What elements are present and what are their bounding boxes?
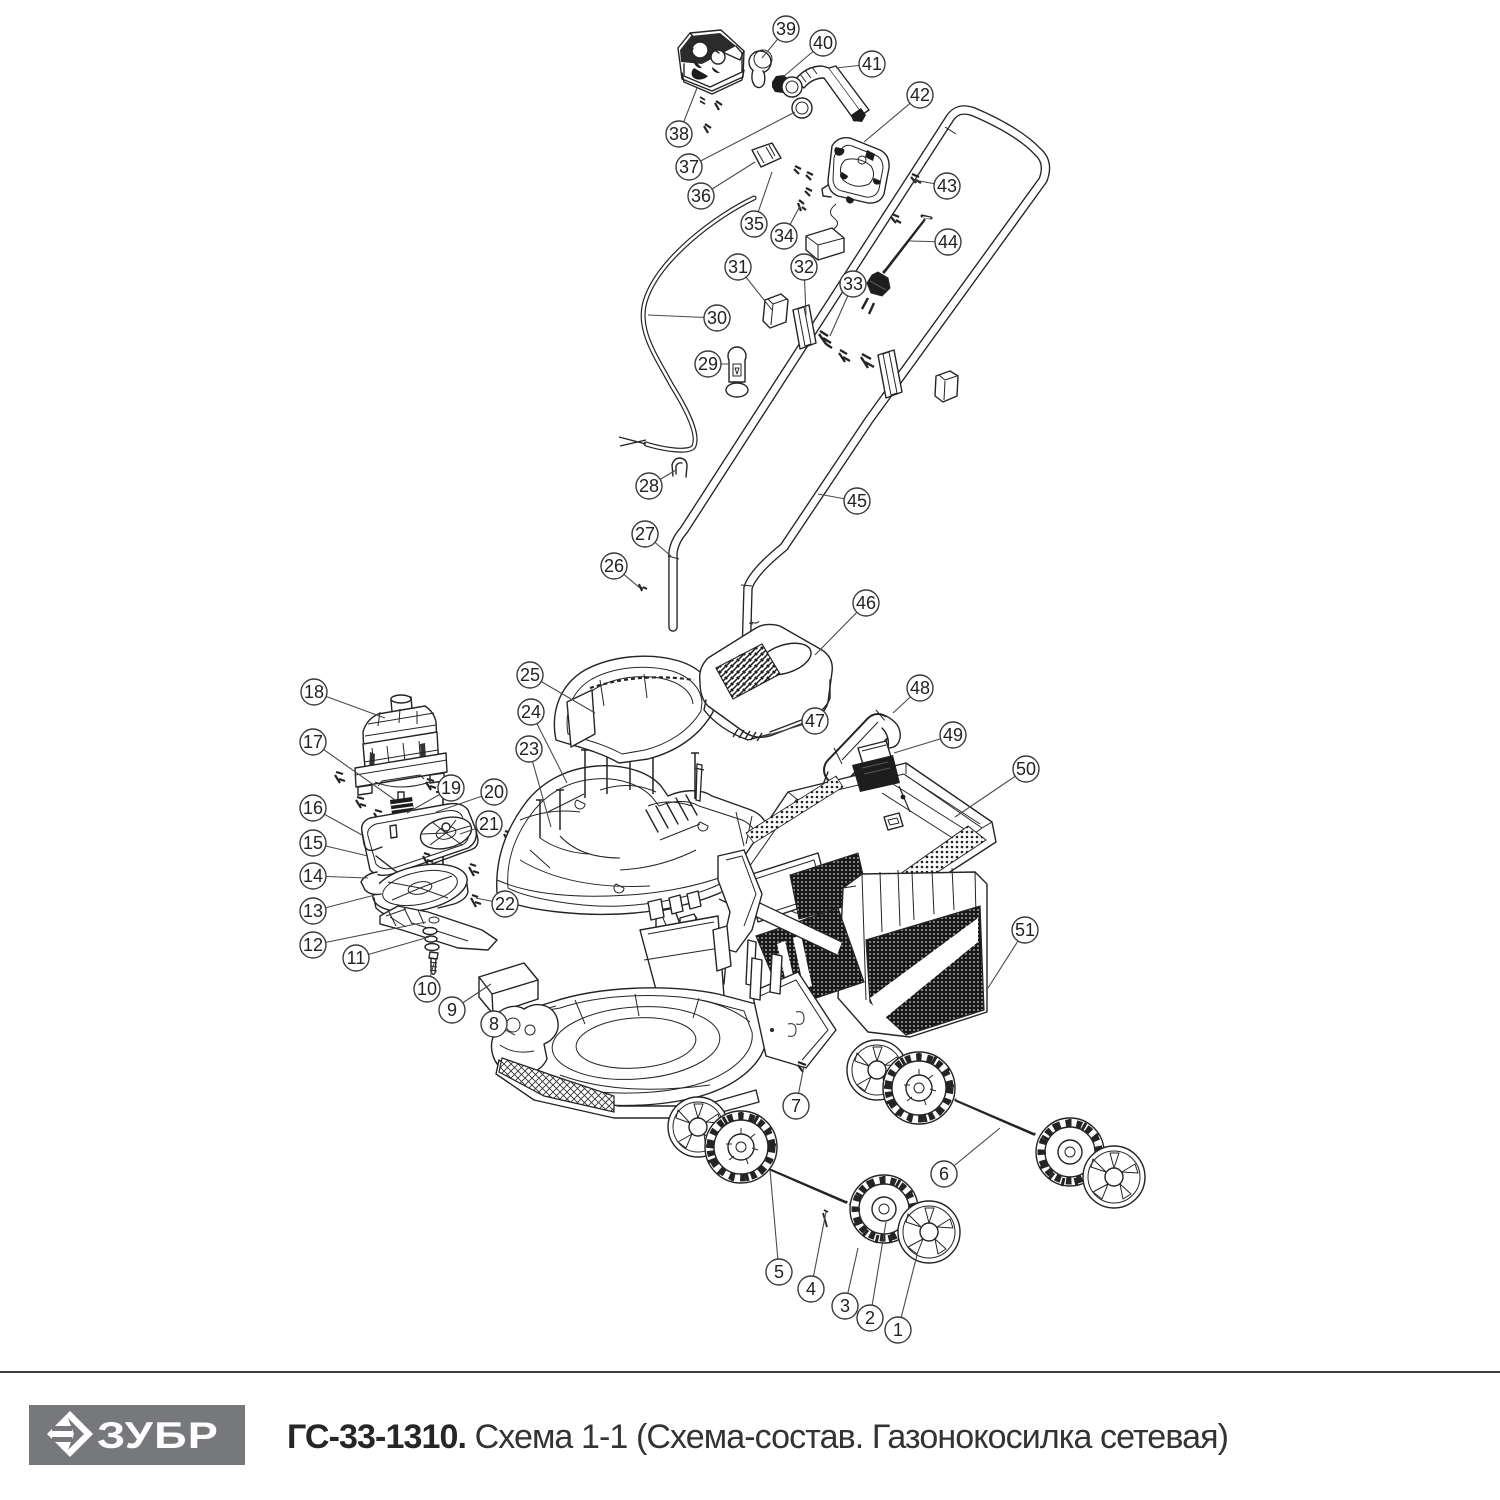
svg-text:12: 12: [303, 935, 323, 955]
svg-text:31: 31: [728, 257, 748, 277]
svg-text:49: 49: [943, 725, 963, 745]
svg-text:34: 34: [774, 226, 794, 246]
svg-text:10: 10: [417, 979, 437, 999]
svg-text:35: 35: [744, 214, 764, 234]
svg-text:25: 25: [520, 665, 540, 685]
svg-text:20: 20: [484, 782, 504, 802]
svg-text:4: 4: [806, 1279, 816, 1299]
svg-text:37: 37: [679, 157, 699, 177]
svg-text:16: 16: [303, 798, 323, 818]
svg-text:33: 33: [843, 274, 863, 294]
svg-text:45: 45: [847, 491, 867, 511]
svg-text:24: 24: [521, 702, 541, 722]
svg-text:46: 46: [856, 593, 876, 613]
svg-text:19: 19: [441, 778, 461, 798]
svg-text:7: 7: [791, 1096, 801, 1116]
svg-text:9: 9: [447, 1000, 457, 1020]
svg-text:8: 8: [489, 1014, 499, 1034]
svg-text:51: 51: [1015, 920, 1035, 940]
svg-text:ГС-33-1310. Схема 1-1 (Схема-с: ГС-33-1310. Схема 1-1 (Схема-состав. Газ…: [287, 1418, 1228, 1456]
svg-text:32: 32: [794, 257, 814, 277]
svg-text:ЗУБР: ЗУБР: [97, 1415, 219, 1456]
svg-text:17: 17: [303, 732, 323, 752]
svg-text:44: 44: [938, 232, 958, 252]
svg-text:28: 28: [639, 476, 659, 496]
svg-text:40: 40: [813, 33, 833, 53]
svg-text:42: 42: [910, 85, 930, 105]
svg-text:26: 26: [604, 556, 624, 576]
svg-text:29: 29: [698, 354, 718, 374]
svg-text:22: 22: [495, 894, 515, 914]
svg-text:2: 2: [865, 1308, 875, 1328]
svg-text:27: 27: [635, 524, 655, 544]
svg-text:6: 6: [939, 1164, 949, 1184]
svg-text:23: 23: [519, 739, 539, 759]
svg-text:15: 15: [303, 833, 323, 853]
svg-text:3: 3: [840, 1296, 850, 1316]
svg-text:41: 41: [862, 54, 882, 74]
svg-text:48: 48: [910, 678, 930, 698]
svg-text:18: 18: [304, 682, 324, 702]
svg-text:36: 36: [691, 186, 711, 206]
svg-text:21: 21: [479, 814, 499, 834]
svg-text:43: 43: [937, 176, 957, 196]
svg-text:5: 5: [774, 1262, 784, 1282]
svg-text:13: 13: [303, 901, 323, 921]
svg-text:47: 47: [805, 711, 825, 731]
svg-text:11: 11: [347, 948, 366, 968]
svg-text:50: 50: [1016, 759, 1036, 779]
svg-text:38: 38: [669, 124, 689, 144]
svg-text:39: 39: [776, 19, 796, 39]
svg-text:30: 30: [707, 308, 727, 328]
svg-text:1: 1: [893, 1320, 903, 1340]
svg-text:14: 14: [303, 866, 323, 886]
